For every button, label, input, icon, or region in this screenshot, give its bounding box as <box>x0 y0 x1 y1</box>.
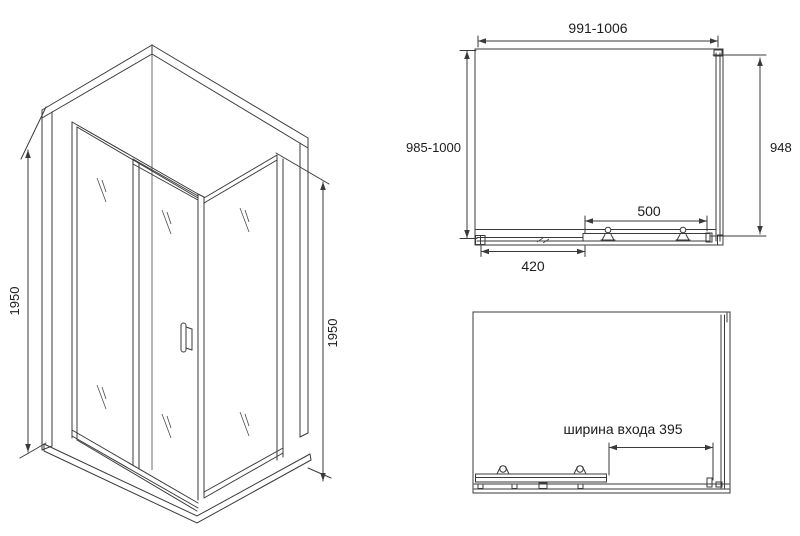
dimension-plan-depth: 985-1000 <box>406 51 477 239</box>
shower-tray <box>44 444 311 523</box>
back-left-wall <box>42 45 152 450</box>
elevation-door-stop <box>707 478 722 487</box>
elevation-sliding-door <box>476 466 607 489</box>
dim-label-height-left: 1950 <box>7 287 22 316</box>
plan-outline <box>475 49 723 245</box>
elevation-right-profile <box>721 313 727 488</box>
plan-view: 991-1006 985-1000 948 500 <box>406 20 792 274</box>
dimension-plan-door: 500 <box>585 203 707 233</box>
dim-label-height-right: 1950 <box>325 319 340 348</box>
isometric-view: 1950 1950 <box>7 45 340 523</box>
dim-label-plan-side: 948 <box>770 140 792 155</box>
elevation-outline <box>473 312 730 493</box>
back-right-wall <box>152 45 308 437</box>
shower-enclosure-drawing: 1950 1950 <box>0 0 800 536</box>
roller-icon <box>573 466 587 474</box>
sliding-door <box>133 159 198 468</box>
dim-label-entry-width: ширина входа 395 <box>563 421 682 437</box>
dimension-height-left: 1950 <box>7 107 46 458</box>
dim-label-plan-door: 500 <box>637 203 661 219</box>
dimension-entry-width: ширина входа 395 <box>563 421 713 480</box>
glass-hatch-marks <box>97 178 249 438</box>
dim-label-plan-depth: 985-1000 <box>406 140 461 155</box>
elevation-view: ширина входа 395 <box>473 312 730 493</box>
door-handle <box>181 323 192 352</box>
dimension-plan-fixed: 420 <box>481 246 585 274</box>
side-glass-panel <box>204 155 283 498</box>
dim-label-plan-width: 991-1006 <box>568 20 627 36</box>
plan-right-profile <box>714 50 722 241</box>
front-glass-wall <box>72 122 204 511</box>
dimension-plan-width: 991-1006 <box>478 20 718 47</box>
dim-label-plan-fixed: 420 <box>521 258 545 274</box>
technical-drawing-page: 1950 1950 <box>0 0 800 536</box>
roller-icon <box>496 466 510 474</box>
